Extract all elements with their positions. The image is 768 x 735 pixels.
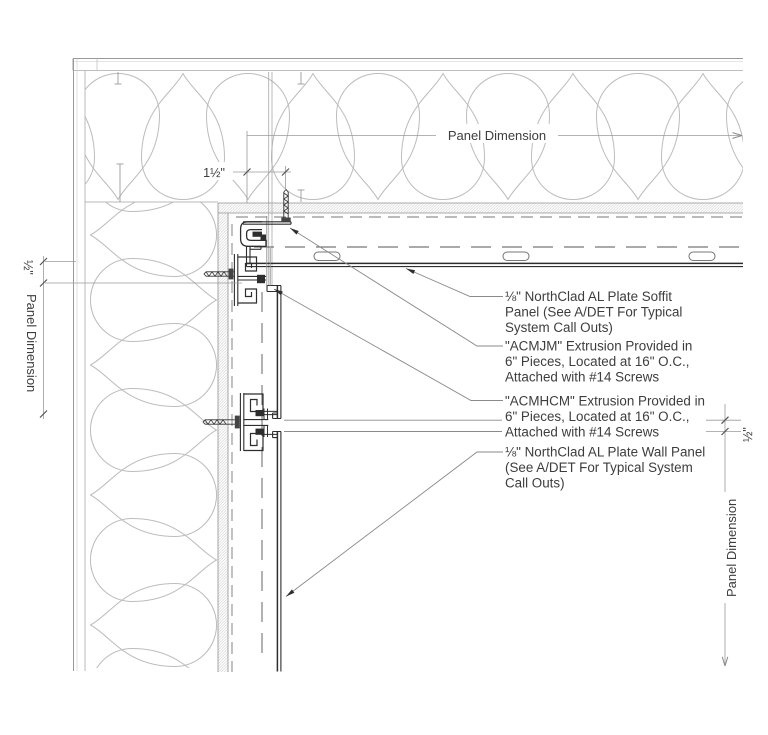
wall-framing: [74, 59, 86, 672]
dim-right-panel-label: Panel Dimension: [724, 499, 739, 597]
wall-panel-lower: [273, 432, 281, 672]
ceiling-sheathing: [218, 203, 743, 213]
arrowhead-icon: [406, 269, 415, 275]
wall-panel-upper: [267, 286, 281, 419]
leader-wall-panel: [286, 452, 503, 597]
wall-batt-insulation: [89, 202, 218, 668]
callout-wall-line3: Call Outs): [505, 476, 565, 491]
arrowhead-icon: [274, 289, 283, 295]
leader-arrowheads: [274, 228, 415, 597]
callout-soffit-line3: System Call Outs): [505, 320, 613, 335]
callout-wall-line1: ⅛" NorthClad AL Plate Wall Panel: [505, 445, 705, 460]
leader-acmhcm: [274, 289, 503, 401]
callout-soffit-line1: ⅛" NorthClad AL Plate Soffit: [505, 289, 672, 304]
arrowhead-icon: [290, 228, 299, 235]
callout-acmhcm-line3: Attached with #14 Screws: [505, 425, 659, 440]
leader-soffit-panel: [406, 269, 503, 297]
roof-deck: [73, 59, 743, 71]
dim-right: ½" Panel Dimension: [706, 404, 755, 666]
leader-acmjm: [290, 228, 503, 346]
dim-left-panel-label: Panel Dimension: [24, 294, 39, 392]
dim-soffit-offset-label: 1½": [203, 166, 225, 180]
callout-acmjm-line2: 6" Pieces, Located at 16" O.C.,: [505, 354, 689, 369]
rail-slot: [314, 252, 340, 261]
dim-top-panel-label: Panel Dimension: [448, 128, 546, 143]
dim-right-gap-label: ½": [741, 427, 755, 442]
callout-acmhcm-line1: "ACMHCM" Extrusion Provided in: [505, 394, 705, 409]
callout-acmhcm-line2: 6" Pieces, Located at 16" O.C.,: [505, 409, 689, 424]
callout-acmjm-line3: Attached with #14 Screws: [505, 370, 659, 385]
callout-notes: ⅛" NorthClad AL Plate Soffit Panel (See …: [505, 289, 705, 491]
callout-wall-line2: (See A/DET For Typical System: [505, 460, 693, 475]
arrowhead-icon: [286, 589, 294, 596]
rail-slot: [503, 252, 529, 261]
callout-soffit-line2: Panel (See A/DET For Typical: [505, 305, 682, 320]
callout-acmjm-line1: "ACMJM" Extrusion Provided in: [505, 339, 692, 354]
rail-slot: [689, 252, 715, 261]
detail-drawing: Panel Dimension 1½" ½" Panel Dimension ½…: [0, 0, 768, 735]
leader-lines: [274, 228, 503, 597]
dim-left-gap-label: ½": [21, 260, 35, 275]
